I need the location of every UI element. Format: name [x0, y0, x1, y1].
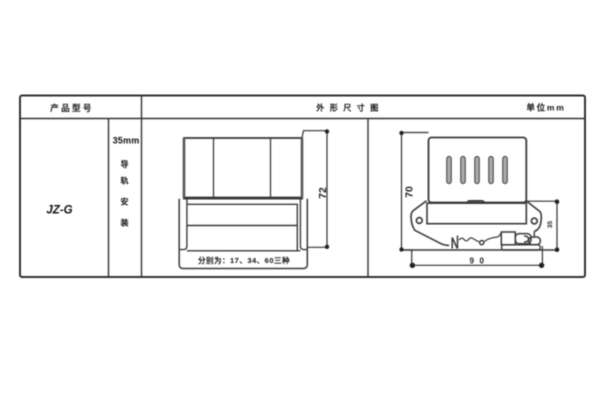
svg-text:90: 90 — [470, 256, 490, 265]
svg-text:外形尺寸图: 外形尺寸图 — [316, 102, 384, 112]
svg-text:72: 72 — [317, 187, 329, 199]
svg-text:单位mm: 单位mm — [526, 103, 565, 113]
svg-text:轨: 轨 — [121, 176, 129, 186]
svg-text:导: 导 — [121, 160, 129, 169]
svg-text:分别为：17、34、60三种: 分别为：17、34、60三种 — [198, 255, 290, 265]
svg-text:产品型号: 产品型号 — [50, 103, 94, 113]
svg-text:70: 70 — [404, 186, 416, 198]
svg-text:35mm: 35mm — [113, 136, 140, 146]
svg-text:装: 装 — [120, 218, 129, 228]
svg-text:35: 35 — [547, 221, 554, 229]
svg-text:安: 安 — [121, 197, 129, 207]
svg-text:JZ-G: JZ-G — [46, 204, 72, 216]
